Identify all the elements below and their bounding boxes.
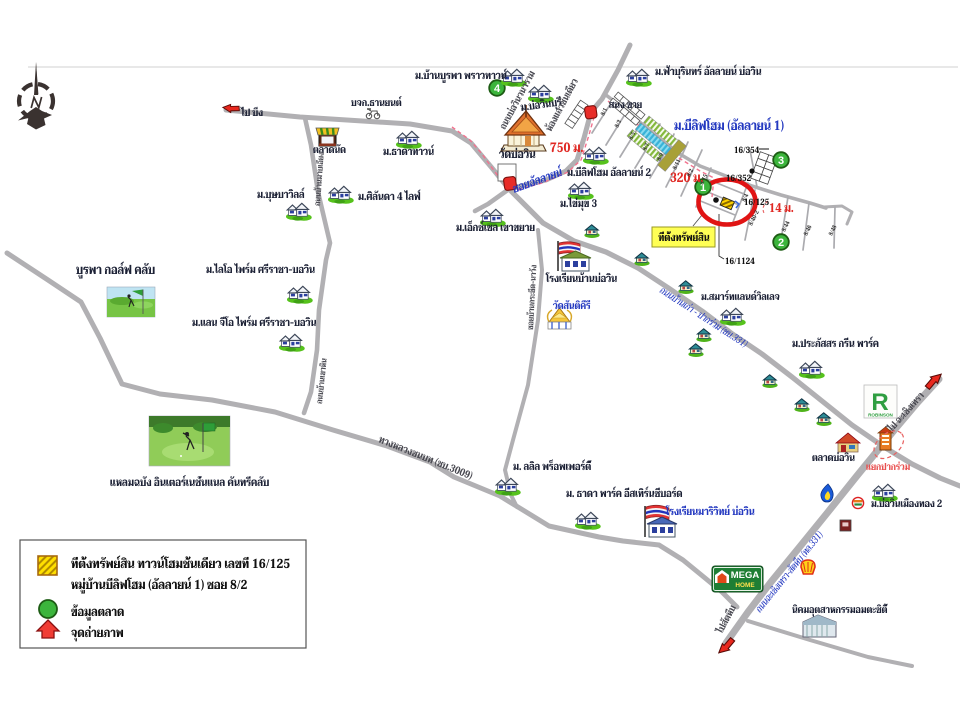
svg-text:ROBINSON: ROBINSON: [868, 413, 893, 418]
svg-text:3: 3: [778, 155, 784, 167]
svg-text:1: 1: [700, 182, 706, 194]
svg-text:MEGA: MEGA: [731, 570, 760, 581]
svg-text:4: 4: [494, 83, 501, 95]
svg-text:2: 2: [778, 237, 784, 249]
svg-text:HOME: HOME: [735, 582, 755, 589]
